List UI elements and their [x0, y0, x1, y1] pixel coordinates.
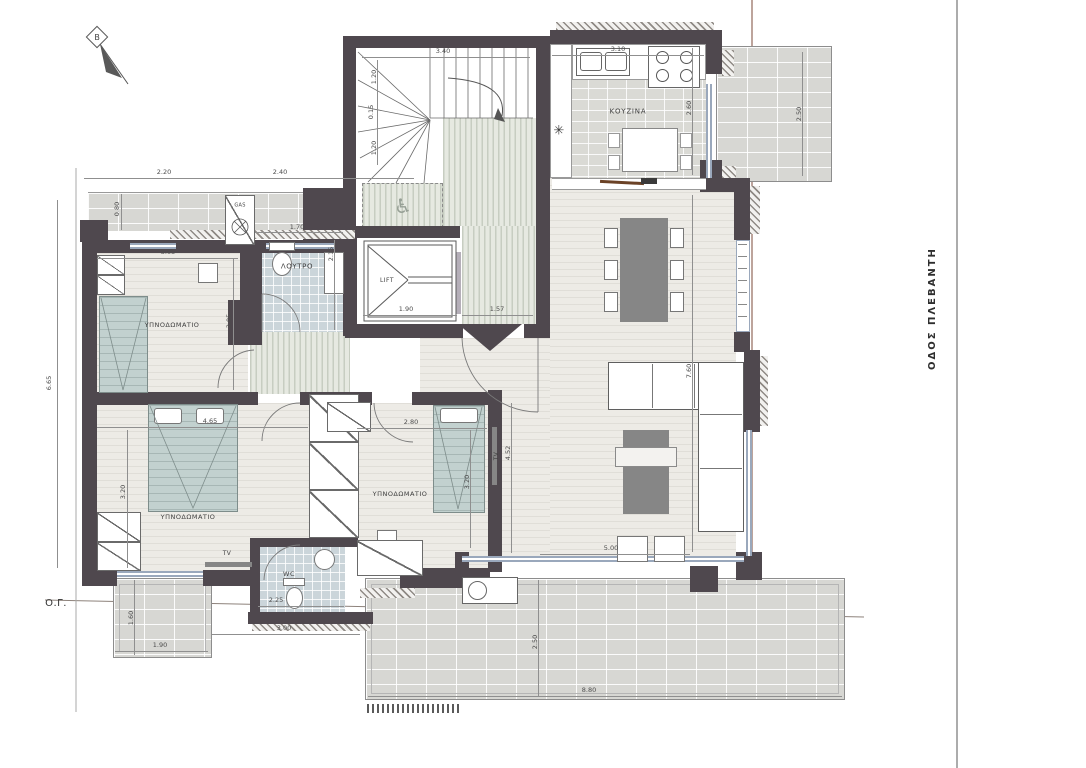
bathroom-toilet-tank	[269, 242, 295, 251]
dining-chair-6	[670, 292, 684, 312]
kitchen-chair-1	[608, 133, 620, 148]
window-living-east	[746, 430, 752, 556]
bedroom3-pillow	[440, 408, 478, 423]
dimension-line	[511, 403, 512, 553]
north-arrow-icon	[100, 44, 128, 84]
dining-chair-2	[604, 260, 618, 280]
dimension-line	[357, 428, 487, 429]
dimension-value: 4.52	[505, 446, 512, 460]
ottoman-2	[654, 536, 685, 562]
dining-table	[620, 218, 668, 322]
kitchen-counter-left	[550, 44, 572, 178]
dimension-value: 1.20	[371, 141, 378, 155]
bedroom1-wardrobe-b	[97, 275, 125, 295]
label-bathroom: ΛΟΥΤΡΟ	[281, 264, 313, 271]
bedroom2-tv-shelf	[205, 562, 252, 567]
dimension-line	[552, 55, 704, 56]
label-bedroom-1: ΥΠΝΟΔΩΜΑΤΙΟ	[145, 322, 200, 329]
label-gas: GAS	[234, 204, 245, 209]
hall-floor	[250, 332, 350, 394]
dimension-value: 5.00	[604, 545, 618, 552]
sofa-divider-1	[652, 364, 653, 408]
dimension-value: 3.10	[611, 46, 625, 53]
lift-door	[456, 252, 461, 314]
radiator-fins	[738, 244, 747, 328]
dimension-value: 2.60	[686, 101, 693, 115]
dimension-value: 3.05	[226, 314, 233, 328]
sofa-divider-4	[700, 468, 742, 469]
dimension-value: 8.80	[582, 687, 596, 694]
sofa-vertical	[698, 362, 744, 532]
dimension-line	[84, 178, 246, 179]
bar-object	[641, 178, 657, 184]
label-fridge-symbol: ✳	[554, 125, 565, 138]
sofa-divider-2	[694, 364, 695, 408]
dining-chair-3	[604, 292, 618, 312]
dimension-value: 3.20	[464, 475, 471, 489]
dimension-line	[462, 315, 533, 316]
coffee-table-band	[615, 447, 677, 467]
dimension-line	[115, 651, 208, 652]
terrace-railing	[367, 704, 459, 713]
dimension-value: 2.50	[532, 635, 539, 649]
dimension-line	[246, 178, 414, 179]
dimension-value: 1.90	[399, 306, 413, 313]
bedroom2-wardrobe-a	[97, 512, 141, 542]
window-living-south	[462, 556, 744, 562]
floor-plan-canvas: 2.202.403.403.101.200.151.202.602.500.80…	[0, 0, 1086, 768]
dimension-line	[97, 258, 238, 259]
stairwell-floor	[356, 48, 533, 118]
divider-closet-c	[309, 490, 359, 538]
label-kitchen: ΚΟΥΖΙΝΑ	[610, 109, 647, 116]
label-bedroom-2: ΥΠΝΟΔΩΜΑΤΙΟ	[161, 514, 216, 521]
dimension-value: 3.00	[277, 625, 291, 632]
dimension-value: 1.90	[153, 642, 167, 649]
label-lift: LIFT	[380, 278, 394, 284]
dimension-line	[540, 554, 690, 555]
dimension-line	[363, 315, 457, 316]
dimension-line	[97, 427, 308, 428]
dining-chair-1	[604, 228, 618, 248]
terrace-planter-circle	[468, 581, 487, 600]
kitchen-chair-3	[680, 133, 692, 148]
terrace-bottom-inner	[371, 584, 839, 694]
dimension-value: 0.80	[114, 202, 121, 216]
dimension-line	[255, 232, 343, 233]
dimension-value: 2.50	[796, 107, 803, 121]
dimension-value: 2.20	[157, 169, 171, 176]
corridor-floor-upper	[443, 118, 536, 226]
bedroom2-pillow-a	[154, 408, 182, 424]
dimension-value: 2.80	[404, 419, 418, 426]
dimension-line	[368, 696, 842, 697]
dimension-line	[57, 200, 58, 568]
dining-chair-5	[670, 260, 684, 280]
dimension-line	[233, 258, 234, 390]
kitchen-table	[622, 128, 678, 172]
dimension-value: 3.40	[436, 48, 450, 55]
dimension-value: 2.25	[269, 597, 283, 604]
dimension-value: 6.65	[46, 376, 53, 390]
label-building-line: Ο.Γ.	[45, 599, 67, 609]
kitchen-chair-2	[608, 155, 620, 170]
dimension-line	[362, 57, 530, 58]
bedroom1-nightstand	[198, 263, 218, 283]
dimension-value: 4.65	[203, 418, 217, 425]
dimension-line	[121, 194, 122, 230]
dimension-value: 3.20	[120, 485, 127, 499]
dimension-value: 7.60	[686, 364, 693, 378]
window-bedroom2-south	[117, 571, 203, 577]
wc-sink	[314, 549, 335, 570]
stove-burner-1	[656, 51, 669, 64]
dimension-line	[127, 430, 128, 568]
dimension-line	[212, 634, 360, 635]
dimension-value: 3.05	[161, 249, 175, 256]
dimension-value: 1.60	[128, 611, 135, 625]
label-tv-bedroom-3: TV	[494, 452, 500, 461]
label-wheelchair-symbol: ♿	[394, 196, 412, 216]
entrance-vestibule-floor	[420, 338, 550, 392]
bedroom1-bed	[99, 296, 148, 393]
dining-chair-4	[670, 228, 684, 248]
ottoman-1	[617, 536, 648, 562]
wc-toilet-tank	[283, 578, 305, 586]
dimension-line	[258, 606, 344, 607]
label-wc: WC	[283, 571, 295, 578]
dimension-value: 2.40	[273, 169, 287, 176]
bedroom2-wardrobe-b	[97, 542, 141, 571]
label-tv-bedroom-2: TV	[223, 551, 232, 557]
dimension-value: 1.70	[290, 224, 304, 231]
coffee-table	[623, 430, 669, 514]
stove-burner-3	[656, 69, 669, 82]
street-name-label: ΟΔΟΣ ΠΛΕΒΑΝΤΗ	[927, 190, 947, 370]
window-kitchen-east	[706, 84, 712, 178]
wc-side-closet	[357, 540, 423, 576]
dimension-value: 1.57	[490, 306, 504, 313]
dimension-value: 0.15	[368, 105, 375, 119]
kitchen-chair-4	[680, 155, 692, 170]
dimension-value: 1.20	[371, 70, 378, 84]
sofa-divider-3	[700, 414, 742, 415]
divider-closet-b	[309, 442, 359, 490]
north-symbol: Β	[86, 26, 109, 49]
living-room-floor-west	[502, 390, 550, 556]
dimension-value: 2.15	[328, 247, 335, 261]
label-bedroom-3: ΥΠΝΟΔΩΜΑΤΙΟ	[373, 491, 428, 498]
